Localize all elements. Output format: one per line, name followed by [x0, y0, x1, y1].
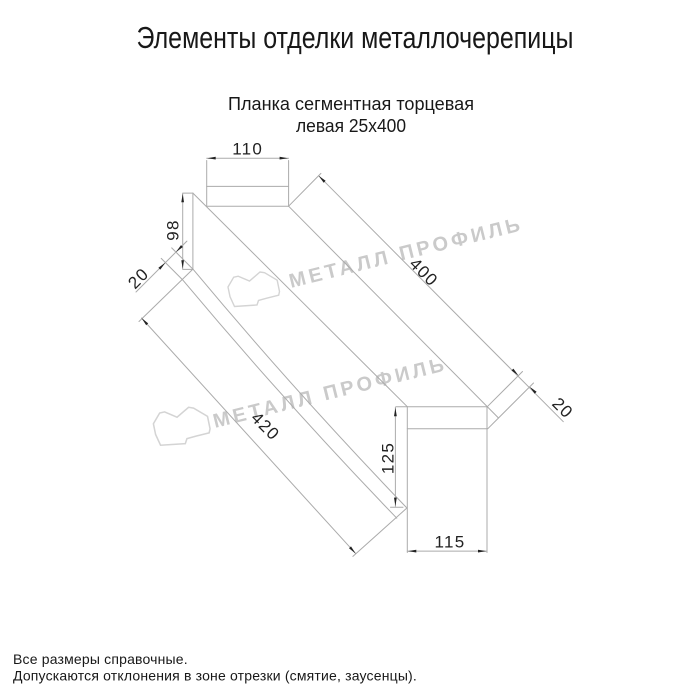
svg-text:98: 98 [164, 219, 183, 241]
svg-text:Элементы отделки металлочерепи: Элементы отделки металлочерепицы [137, 20, 574, 55]
svg-text:МЕТАЛЛ ПРОФИЛЬ: МЕТАЛЛ ПРОФИЛЬ [287, 214, 522, 293]
svg-text:115: 115 [434, 533, 465, 552]
svg-text:Допускаются отклонения в зоне: Допускаются отклонения в зоне отрезки (с… [13, 668, 417, 684]
svg-text:Планка сегментная торцевая: Планка сегментная торцевая [228, 94, 474, 114]
svg-text:МЕТАЛЛ ПРОФИЛЬ: МЕТАЛЛ ПРОФИЛЬ [211, 354, 446, 433]
svg-text:20: 20 [548, 394, 577, 423]
svg-text:20: 20 [124, 264, 153, 293]
svg-text:левая 25х400: левая 25х400 [296, 116, 406, 136]
svg-text:110: 110 [232, 140, 263, 159]
svg-text:Все размеры справочные.: Все размеры справочные. [13, 651, 188, 667]
svg-text:125: 125 [379, 442, 398, 474]
